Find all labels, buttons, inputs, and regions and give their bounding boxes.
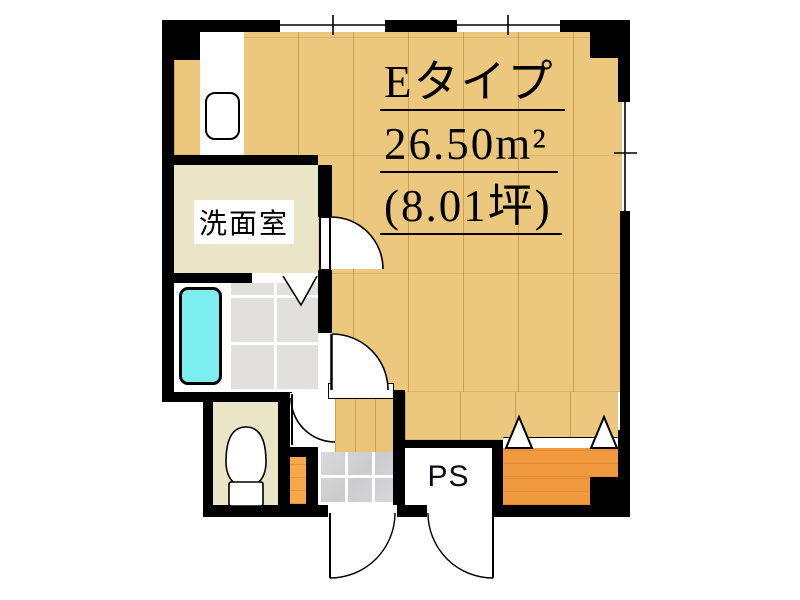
closet-door-triangle-left xyxy=(506,417,532,448)
hall-door-swing-fill xyxy=(332,334,388,390)
toilet-bowl xyxy=(226,427,266,484)
entrance-door-right-arc xyxy=(428,513,493,578)
washroom-label: 洗面室 xyxy=(194,200,294,244)
toilet-door-arc xyxy=(291,398,335,442)
unit-area-tsubo: (8.01坪) xyxy=(380,184,562,235)
washroom-door-swing-fill xyxy=(331,217,383,269)
pipe-space-box: PS xyxy=(405,448,492,505)
unit-title-block: Eタイプ 26.50m² (8.01坪) xyxy=(380,60,565,246)
unit-type-label: Eタイプ xyxy=(380,60,565,111)
unit-area-sqm: 26.50m² xyxy=(380,122,558,173)
closet-door-triangle-right xyxy=(591,417,617,448)
toilet-tank xyxy=(229,482,263,506)
entrance-door-left-arc xyxy=(330,513,395,578)
bath-fold-door-fill xyxy=(283,276,317,305)
floor-plan: Eタイプ 26.50m² (8.01坪) 洗面室 PS xyxy=(0,0,800,600)
pipe-space-label: PS xyxy=(427,460,469,494)
